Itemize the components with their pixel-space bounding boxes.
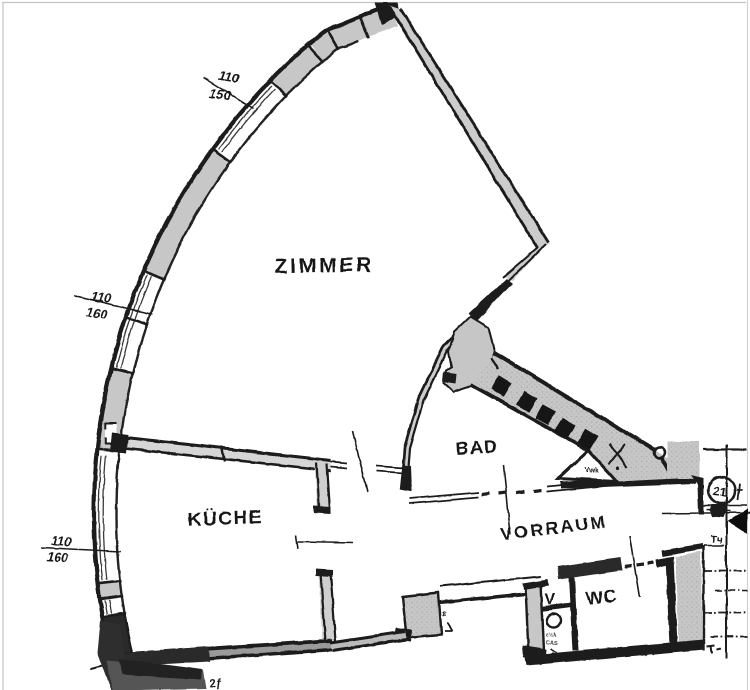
svg-text:KÜCHE: KÜCHE [187, 507, 263, 531]
svg-text:Tч: Tч [709, 533, 722, 545]
svg-text:Vwk: Vwk [584, 467, 598, 474]
svg-text:CAS: CAS [545, 640, 557, 646]
svg-text:160: 160 [84, 304, 108, 322]
svg-text:160: 160 [46, 548, 69, 565]
svg-text:110: 110 [50, 532, 72, 548]
svg-text:21: 21 [711, 483, 727, 500]
svg-text:BAD: BAD [455, 436, 499, 458]
svg-text:110: 110 [89, 288, 112, 306]
svg-text:2ƒ: 2ƒ [209, 677, 222, 690]
svg-text:ε: ε [442, 608, 447, 618]
svg-text:WC: WC [584, 585, 617, 608]
svg-text:ε½ƛ: ε½ƛ [545, 631, 556, 638]
svg-text:V: V [544, 591, 555, 608]
svg-text:ZIMMER: ZIMMER [274, 253, 374, 278]
